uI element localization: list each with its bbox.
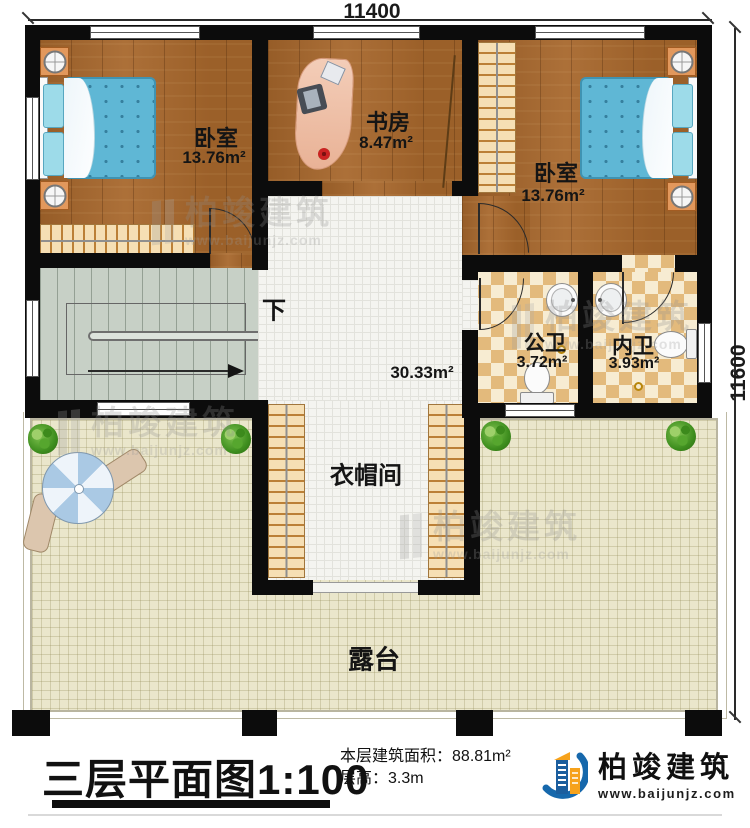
door-leaf-bedroom-right: [478, 203, 480, 254]
wall-bedroom-left-bottom: [25, 253, 210, 268]
window-inner-bath: [698, 323, 711, 383]
nightstand: [40, 181, 69, 210]
label-cloakroom: 衣帽间: [330, 456, 402, 491]
stair-direction-line: [88, 370, 230, 372]
toilet-tank: [686, 329, 697, 359]
area-public-bath: 3.72m²: [517, 354, 568, 372]
wall-study-bedroom-right: [462, 25, 478, 196]
sink-basin: [600, 288, 622, 312]
label-stairs-down: 下: [262, 291, 286, 326]
wall-bath-top-left: [462, 255, 578, 272]
cloakroom-terrace-opening: [313, 582, 418, 593]
logo-url: www.baijunjz.com: [598, 787, 736, 800]
logo-brand-name: 柏竣建筑: [598, 754, 736, 783]
floorplan-canvas: 11400 11600: [0, 0, 750, 828]
area-study: 8.47m²: [359, 133, 413, 153]
wall-study-bottom-left: [252, 181, 322, 196]
nightstand: [667, 182, 696, 211]
area-bedroom-right: 13.76m²: [521, 186, 584, 206]
floor-area-value: 88.81m²: [452, 748, 511, 765]
label-public-bath: 公卫: [524, 327, 566, 357]
lamp-icon: [43, 184, 66, 207]
door-leaf-public-bath: [479, 278, 481, 330]
dimension-top-line: [28, 19, 712, 21]
wall-bedroom-left-study: [252, 25, 268, 270]
plan-title-text: 三层平面图: [42, 756, 257, 803]
floor-drain-icon: [634, 382, 643, 391]
wardrobe-bedroom-right: [478, 42, 516, 193]
faucet-icon: [571, 298, 575, 302]
company-logo: 柏竣建筑 www.baijunjz.com: [540, 748, 736, 806]
wall-cloakroom-bottom-right: [418, 580, 480, 595]
inner-bath-door-opening: [622, 255, 675, 272]
bed-pillow: [43, 132, 64, 176]
floor-info: 本层建筑面积：88.81m² 层高：3.3m: [340, 746, 511, 790]
monitor-screen: [303, 89, 321, 110]
plan-title: 三层平面图1:100: [42, 746, 369, 807]
dimension-right-value: 11600: [727, 331, 750, 415]
area-hall: 30.33m²: [390, 363, 453, 383]
stair-railing: [88, 331, 258, 341]
wall-public-bath-left-upper: [462, 272, 478, 280]
dimension-tick: [22, 12, 35, 25]
area-bedroom-left: 13.76m²: [182, 148, 245, 168]
door-leaf-inner-bath: [622, 272, 624, 324]
wardrobe-cloakroom-right: [428, 404, 465, 578]
area-inner-bath: 3.93m²: [609, 355, 660, 373]
bed-pillow: [672, 84, 693, 128]
wall-bath-top-mid: [593, 255, 622, 272]
pillar: [12, 710, 50, 736]
floor-height-row: 层高：3.3m: [340, 768, 511, 790]
label-terrace: 露台: [348, 640, 400, 677]
nightstand: [667, 47, 696, 76]
wall-cloakroom-bottom-left: [252, 580, 313, 595]
window-bedroom-right: [535, 26, 645, 39]
wall-bath-top-right: [675, 255, 712, 272]
plant-icon: [28, 424, 58, 454]
study-door-opening: [322, 181, 452, 196]
public-bath-door-opening: [462, 280, 478, 330]
bed-blanket: [642, 78, 673, 178]
plant-icon: [666, 421, 696, 451]
window-stair-bottom: [97, 402, 190, 416]
plant-small-icon: [318, 148, 330, 160]
floor-area-label: 本层建筑面积：: [340, 748, 452, 765]
wall-bath-divider: [578, 255, 593, 418]
wall-cloakroom-left: [252, 400, 268, 595]
window-study: [313, 26, 420, 39]
wall-cloakroom-right: [464, 418, 480, 595]
dimension-tick: [702, 12, 715, 25]
faucet-icon: [598, 298, 602, 302]
wardrobe-cloakroom-left: [268, 404, 305, 578]
pillar: [242, 710, 277, 736]
stair-arrow-icon: [228, 364, 244, 378]
bedroom-left-door-opening: [210, 253, 255, 268]
logo-building-icon: [540, 748, 588, 806]
nightstand: [40, 47, 69, 76]
window-left-wall: [26, 97, 39, 180]
pillar: [685, 710, 722, 736]
lamp-icon: [670, 50, 693, 73]
floor-area-row: 本层建筑面积：88.81m²: [340, 746, 511, 768]
wall-bath-bottom: [462, 403, 712, 418]
sink-basin: [551, 288, 573, 312]
bed-pillow: [672, 132, 693, 176]
label-bedroom-right: 卧室: [534, 156, 578, 188]
door-leaf-bedroom-left: [209, 208, 211, 254]
toilet-bowl: [654, 331, 688, 358]
window-bedroom-left: [90, 26, 200, 39]
logo-text-block: 柏竣建筑 www.baijunjz.com: [598, 754, 736, 800]
lamp-icon: [43, 50, 66, 73]
footer-divider: [28, 814, 722, 816]
window-public-bath: [505, 404, 575, 417]
plant-icon: [481, 421, 511, 451]
bed-pillow: [43, 84, 64, 128]
floor-height-value: 3.3m: [388, 770, 424, 787]
pillar: [456, 710, 493, 736]
window-stairwell: [26, 300, 39, 377]
floor-height-label: 层高：: [340, 770, 388, 787]
lamp-icon: [670, 185, 693, 208]
title-underline: [52, 800, 330, 808]
umbrella-pole: [74, 484, 84, 494]
plant-icon: [221, 424, 251, 454]
sink: [546, 283, 578, 317]
